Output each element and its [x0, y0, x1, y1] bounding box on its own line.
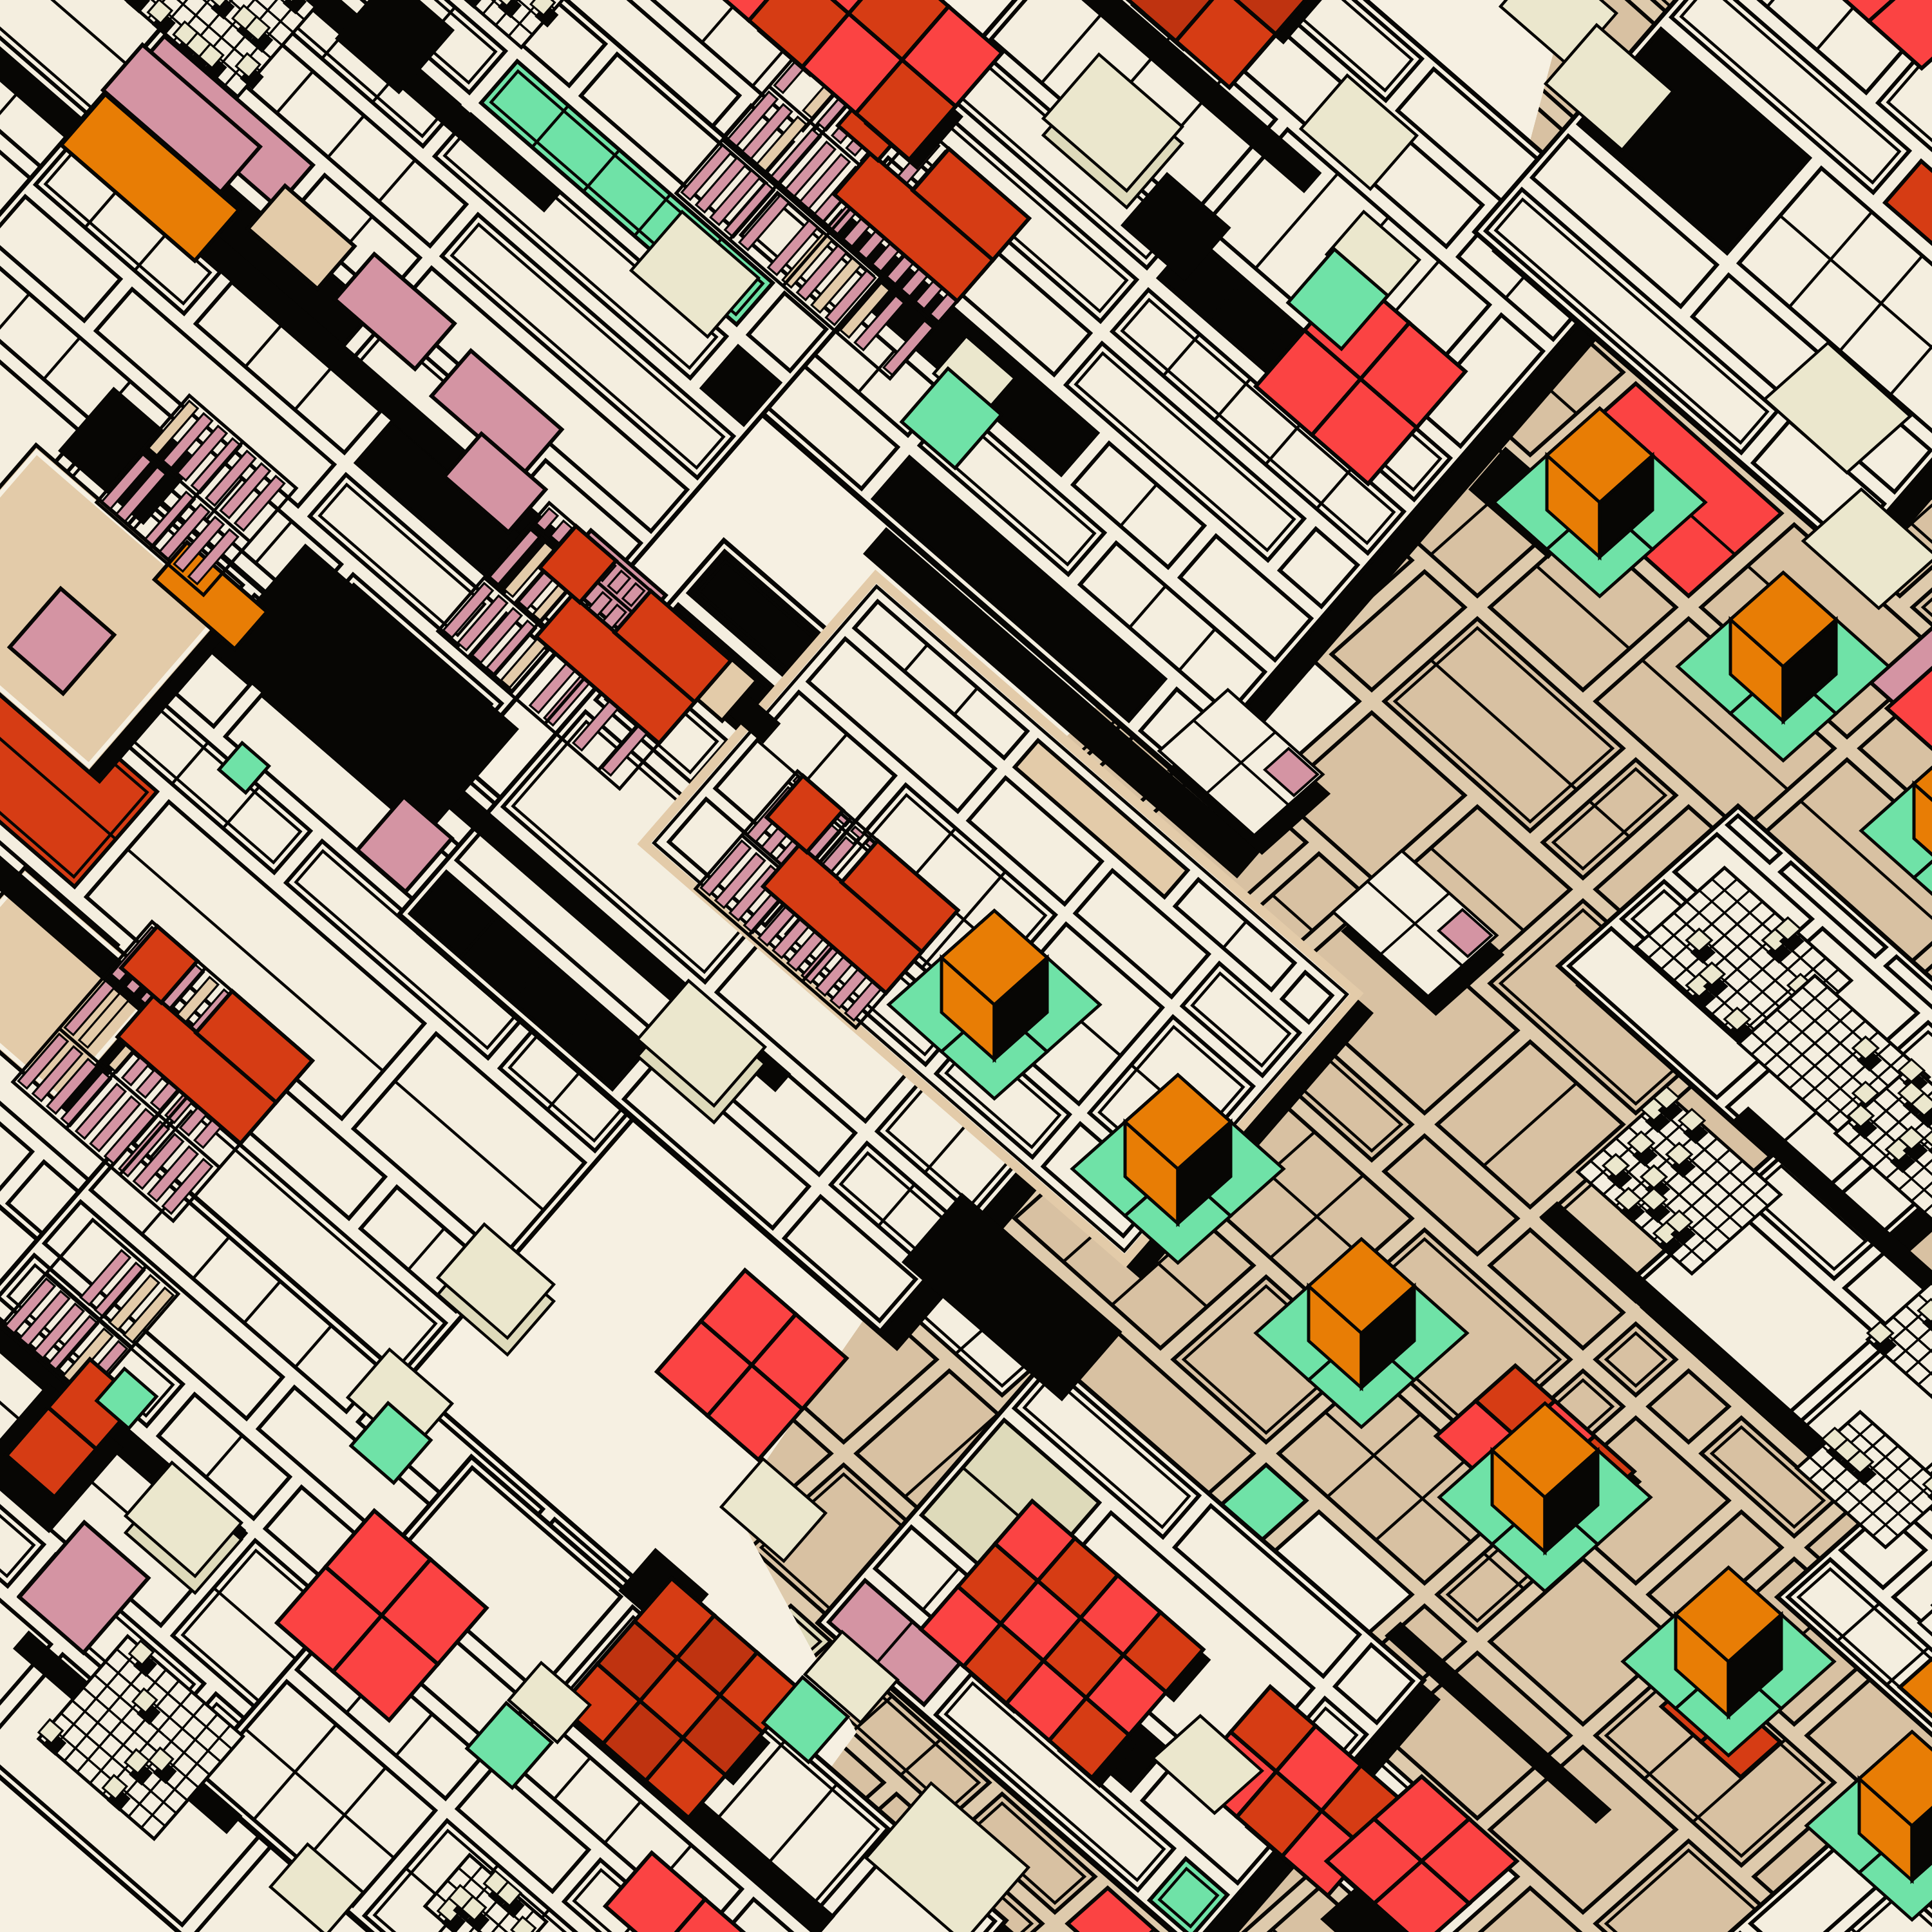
artwork-stage	[0, 0, 1932, 1932]
generative-artwork-canvas	[0, 0, 1932, 1932]
